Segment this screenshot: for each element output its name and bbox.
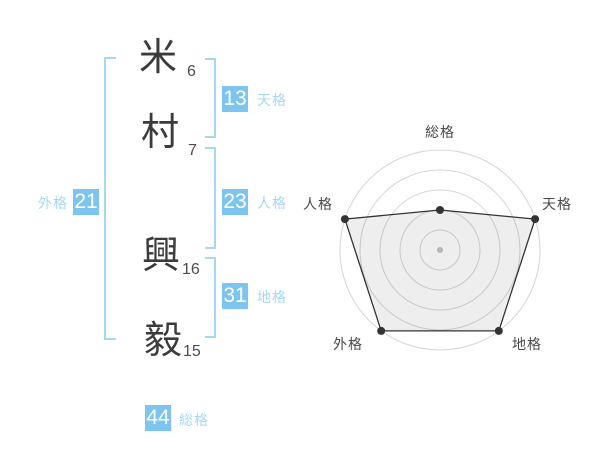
soukaku-score-badge: 44 xyxy=(145,405,171,431)
radar-axis-label: 人格 xyxy=(303,196,333,212)
tenkaku-score-badge: 13 xyxy=(222,86,248,112)
radar-axis-label: 総格 xyxy=(425,124,455,140)
radar-data-point xyxy=(341,215,349,223)
radar-data-polygon xyxy=(345,210,535,331)
tenkaku-label: 天格 xyxy=(257,93,287,108)
radar-data-point xyxy=(436,206,444,214)
stroke-count-3: 16 xyxy=(182,262,200,278)
radar-axis-label: 天格 xyxy=(542,196,572,212)
stroke-count-4: 15 xyxy=(183,344,201,360)
given-name-char-2: 毅 xyxy=(139,322,187,360)
tenkaku-bracket xyxy=(205,58,216,138)
name-fortune-panel: 米 村 興 毅 6 7 16 15 13 天格 23 人格 31 地格 外格 2… xyxy=(0,0,600,470)
chikaku-label: 地格 xyxy=(257,290,287,305)
gaikaku-label: 外格 xyxy=(38,196,68,211)
family-name-char-1: 米 xyxy=(134,39,182,77)
family-name-char-2: 村 xyxy=(136,114,184,152)
jinkaku-bracket xyxy=(205,147,216,249)
radar-axis-label: 地格 xyxy=(512,336,542,352)
chikaku-score-badge: 31 xyxy=(222,283,248,309)
gaikaku-bracket xyxy=(104,57,116,340)
radar-data-point xyxy=(495,327,503,335)
stroke-count-1: 6 xyxy=(187,64,196,80)
fortune-radar-chart: 総格天格地格外格人格 xyxy=(290,110,590,375)
radar-data-point xyxy=(377,327,385,335)
gaikaku-score-badge: 21 xyxy=(73,189,99,215)
soukaku-label: 総格 xyxy=(179,413,209,428)
radar-data-point xyxy=(531,215,539,223)
jinkaku-label: 人格 xyxy=(257,196,287,211)
given-name-char-1: 興 xyxy=(137,237,185,275)
stroke-count-2: 7 xyxy=(188,143,197,159)
radar-axis-label: 外格 xyxy=(333,336,363,352)
jinkaku-score-badge: 23 xyxy=(222,189,248,215)
chikaku-bracket xyxy=(205,257,216,338)
